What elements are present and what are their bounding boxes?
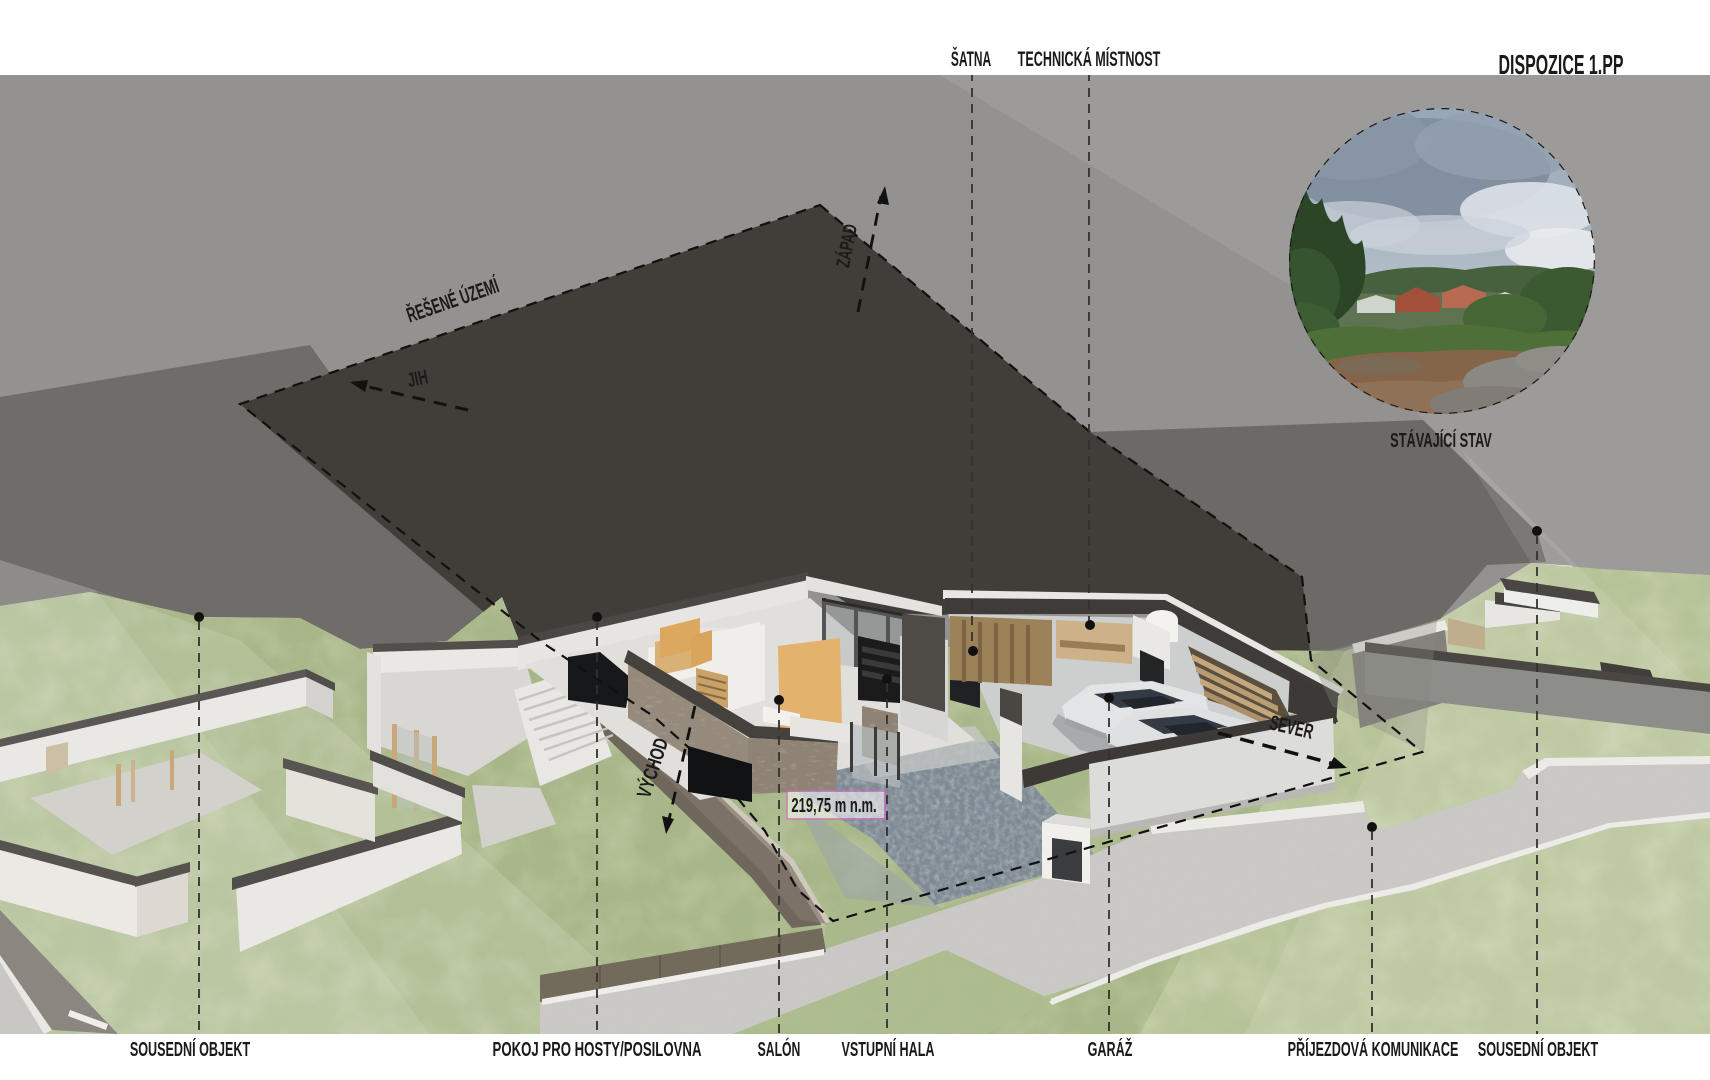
svg-text:SOUSEDNÍ OBJEKT: SOUSEDNÍ OBJEKT [130,1038,251,1061]
svg-text:ŠATNA: ŠATNA [951,48,991,71]
svg-text:STÁVAJÍCÍ STAV: STÁVAJÍCÍ STAV [1390,429,1492,452]
svg-text:DISPOZICE 1.PP: DISPOZICE 1.PP [1499,48,1624,80]
svg-text:PŘÍJEZDOVÁ KOMUNIKACE: PŘÍJEZDOVÁ KOMUNIKACE [1288,1038,1459,1061]
svg-text:219,75 m n.m.: 219,75 m n.m. [791,794,876,817]
svg-text:SALÓN: SALÓN [758,1038,801,1061]
svg-text:TECHNICKÁ MÍSTNOST: TECHNICKÁ MÍSTNOST [1018,47,1161,71]
svg-text:GARÁŽ: GARÁŽ [1088,1038,1133,1061]
svg-text:SOUSEDNÍ OBJEKT: SOUSEDNÍ OBJEKT [1478,1038,1599,1061]
svg-text:POKOJ PRO HOSTY/POSILOVNA: POKOJ PRO HOSTY/POSILOVNA [493,1038,702,1060]
svg-text:VSTUPNÍ HALA: VSTUPNÍ HALA [841,1038,934,1061]
